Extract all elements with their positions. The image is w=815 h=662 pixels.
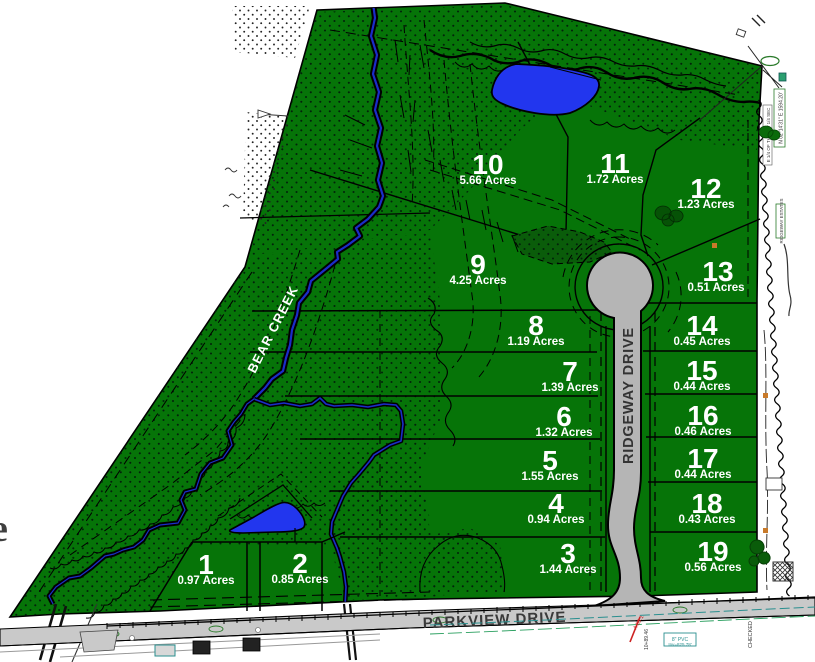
svg-text:0.56 Acres: 0.56 Acres [684,562,741,574]
svg-text:1.19 Acres: 1.19 Acres [507,336,564,348]
svg-text:0.97 Acres: 0.97 Acres [177,575,234,587]
svg-text:e: e [0,508,8,550]
svg-text:0.45 Acres: 0.45 Acres [673,336,730,348]
svg-text:10+89.46: 10+89.46 [644,629,650,650]
svg-text:1.32 Acres: 1.32 Acres [535,427,592,439]
svg-text:0.46 Acres: 0.46 Acres [674,426,731,438]
svg-text:1.72 Acres: 1.72 Acres [586,174,643,186]
svg-text:Inv=825.78': Inv=825.78' [668,642,691,647]
svg-text:CHECKED: CHECKED [748,621,754,648]
svg-text:1.55 Acres: 1.55 Acres [521,471,578,483]
svg-text:0.44 Acres: 0.44 Acres [674,469,731,481]
svg-text:0.44 Acres: 0.44 Acres [673,381,730,393]
svg-text:5.66 Acres: 5.66 Acres [459,175,516,187]
svg-text:1.44 Acres: 1.44 Acres [539,564,596,576]
svg-text:0.85 Acres: 0.85 Acres [271,574,328,586]
svg-text:RIDGEWAY ESTATES: RIDGEWAY ESTATES [779,198,784,243]
svg-text:0.43 Acres: 0.43 Acres [678,514,735,526]
svg-text:1.23 Acres: 1.23 Acres [677,199,734,211]
svg-text:0.51 Acres: 0.51 Acres [687,282,744,294]
svg-text:4.25 Acres: 4.25 Acres [449,275,506,287]
svg-text:RIDGEWAY DRIVE: RIDGEWAY DRIVE [621,327,637,464]
svg-text:1.39 Acres: 1.39 Acres [541,382,598,394]
svg-text:0.94 Acres: 0.94 Acres [527,514,584,526]
